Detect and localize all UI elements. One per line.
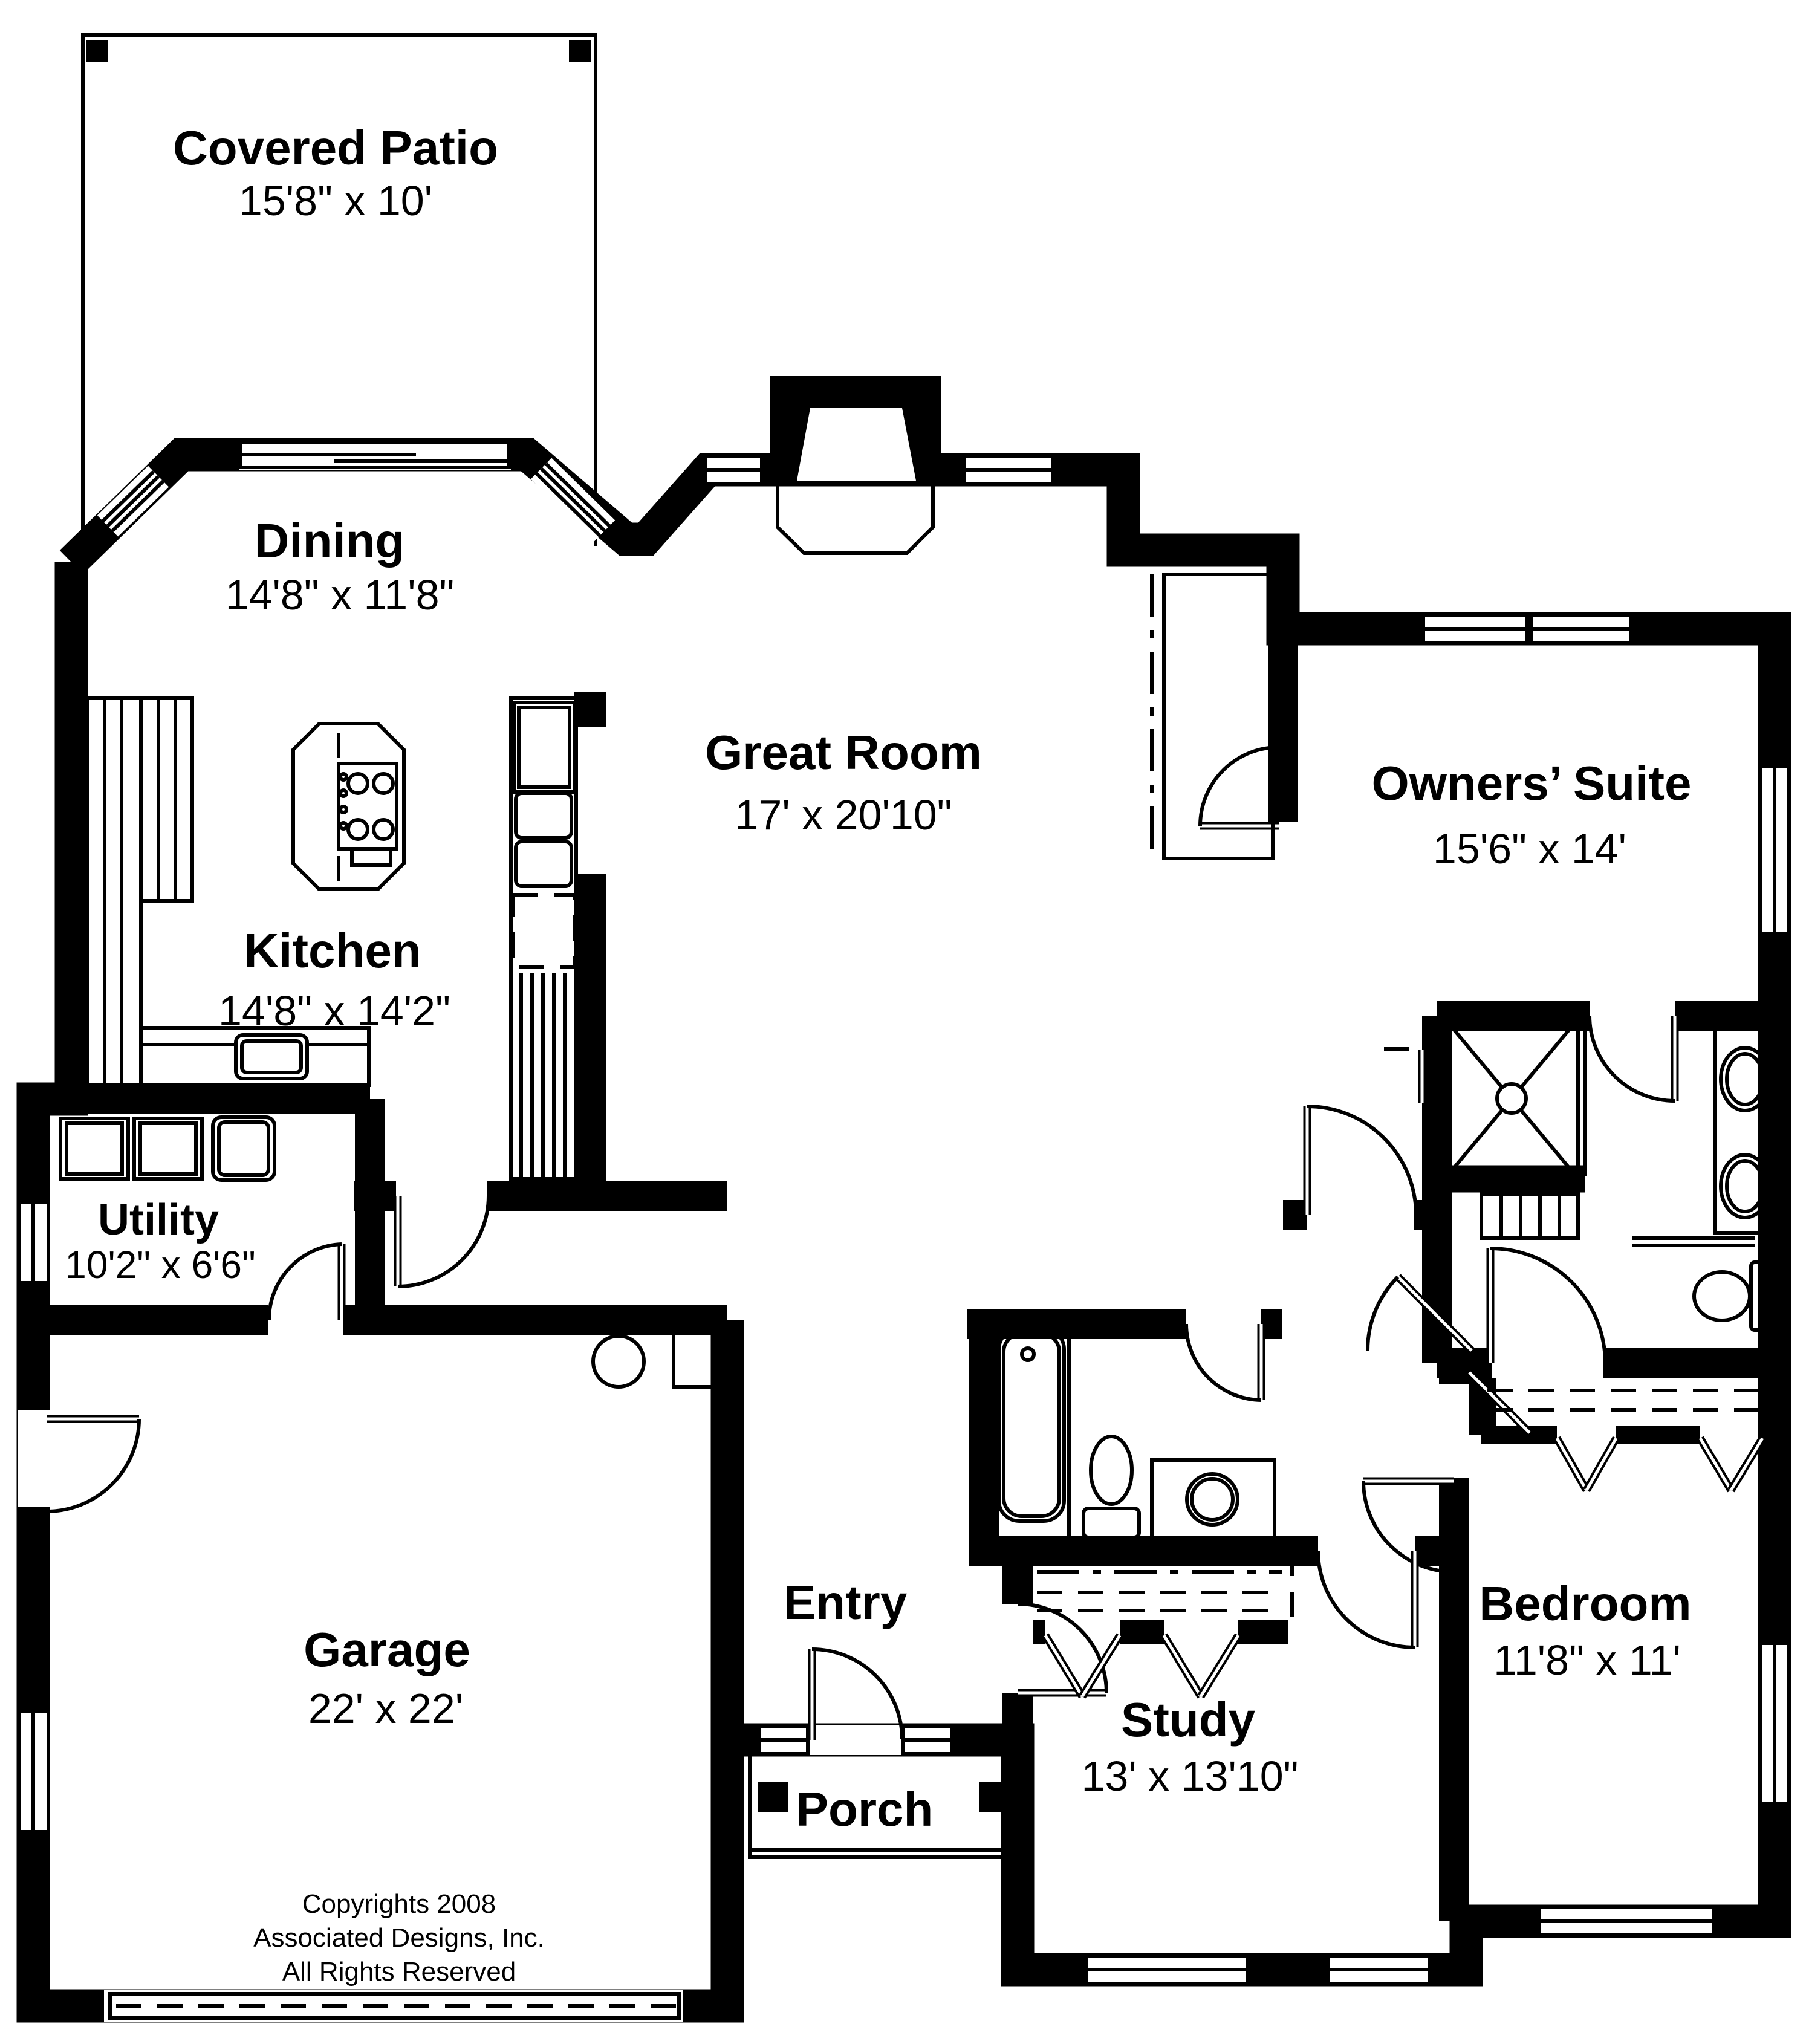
toilet-1	[1083, 1436, 1139, 1537]
utility-dims: 10'2" x 6'6"	[65, 1243, 255, 1286]
kitchen-island	[293, 724, 404, 889]
copyright-line-2: Associated Designs, Inc.	[253, 1923, 545, 1953]
kitchen-sink	[236, 1035, 307, 1079]
bathtub	[999, 1329, 1064, 1521]
towel-bar	[1632, 1238, 1755, 1245]
fireplace	[770, 376, 941, 553]
owners-bath-lower-door	[1490, 1248, 1605, 1363]
floor-plan-page: Covered Patio 15'8" x 10' Dining 14'8" x…	[0, 0, 1806, 2044]
room-label-dining: Dining 14'8" x 11'8"	[226, 514, 455, 618]
garage-dims: 22' x 22'	[308, 1685, 463, 1732]
patio-post-left	[86, 40, 108, 62]
room-label-bedroom: Bedroom 11'8" x 11'	[1479, 1577, 1691, 1684]
porch-post-left	[758, 1782, 788, 1812]
porch-post-right	[979, 1782, 1010, 1812]
copyright-line-3: All Rights Reserved	[282, 1957, 516, 1987]
covered-patio-name: Covered Patio	[173, 121, 498, 175]
room-label-utility: Utility 10'2" x 6'6"	[65, 1196, 255, 1286]
garage-side-door	[47, 1419, 139, 1511]
floor-plan-drawing: Covered Patio 15'8" x 10' Dining 14'8" x…	[0, 0, 1806, 2044]
utility-name: Utility	[98, 1196, 219, 1244]
kitchen-name: Kitchen	[244, 924, 421, 978]
bedroom-name: Bedroom	[1479, 1577, 1691, 1630]
windows	[19, 442, 1788, 2018]
room-label-kitchen: Kitchen 14'8" x 14'2"	[218, 924, 450, 1034]
hearth	[778, 484, 933, 553]
great-room-dims: 17' x 20'10"	[735, 791, 952, 839]
garage-name: Garage	[304, 1623, 470, 1676]
walk-in-closet-door	[1200, 747, 1279, 826]
owners-suite-name: Owners’ Suite	[1371, 756, 1691, 810]
media-niche	[1152, 574, 1273, 858]
dining-dims: 14'8" x 11'8"	[226, 571, 455, 618]
linen-shelves	[1481, 1194, 1578, 1238]
room-label-study: Study 13' x 13'10"	[1081, 1693, 1298, 1800]
owners-suite-door	[1307, 1106, 1416, 1215]
owners-suite-dims: 15'6" x 14'	[1433, 825, 1626, 872]
room-label-entry: Entry	[784, 1575, 908, 1629]
patio-post-right	[569, 40, 591, 62]
cooktop	[339, 764, 397, 865]
study-name: Study	[1121, 1693, 1256, 1747]
dining-name: Dining	[255, 514, 405, 568]
entry-name: Entry	[784, 1575, 908, 1629]
hall-angled-door-a	[1368, 1277, 1472, 1351]
vanity-1	[1152, 1460, 1275, 1548]
utility-sink	[213, 1117, 274, 1180]
great-room-name: Great Room	[705, 725, 982, 779]
room-label-covered-patio: Covered Patio 15'8" x 10'	[173, 121, 498, 224]
bedroom-dims: 11'8" x 11'	[1493, 1637, 1681, 1684]
exterior-walls	[33, 455, 1775, 2006]
water-heater	[593, 1336, 644, 1387]
porch-name: Porch	[796, 1782, 934, 1836]
study-dims: 13' x 13'10"	[1081, 1753, 1298, 1800]
kitchen-right-counter	[511, 698, 576, 1179]
shower	[1452, 1022, 1585, 1176]
hall-bath-fixtures	[999, 1327, 1275, 1548]
closets	[1037, 574, 1772, 1696]
room-label-great-room: Great Room 17' x 20'10"	[705, 725, 982, 839]
room-label-owners-suite: Owners’ Suite 15'6" x 14'	[1371, 756, 1691, 872]
copyright-line-1: Copyrights 2008	[302, 1889, 496, 1919]
utility-fixtures	[60, 1117, 274, 1180]
room-label-garage: Garage 22' x 22'	[304, 1623, 470, 1732]
copyright-block: Copyrights 2008 Associated Designs, Inc.…	[253, 1889, 545, 1987]
kitchen-dims: 14'8" x 14'2"	[218, 987, 450, 1034]
covered-patio-dims: 15'8" x 10'	[239, 177, 432, 224]
garage-fixtures	[593, 1330, 730, 1387]
dressing-pocket-door	[1384, 1049, 1422, 1103]
room-label-porch: Porch	[796, 1782, 934, 1836]
